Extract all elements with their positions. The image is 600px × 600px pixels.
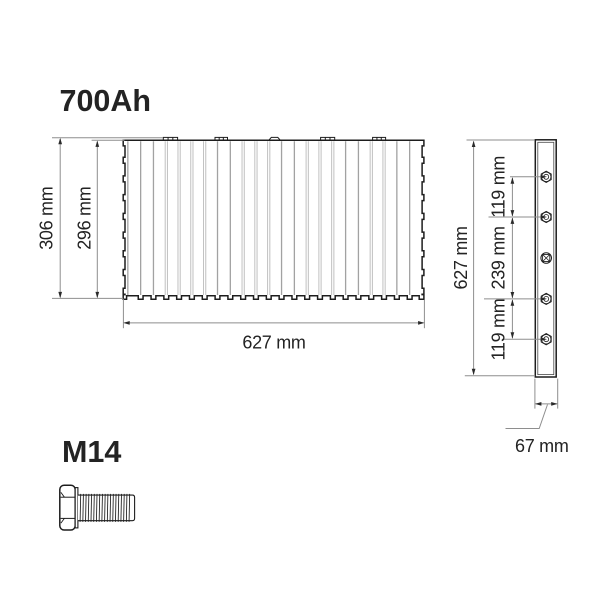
svg-text:296 mm: 296 mm [74,187,94,250]
svg-text:627 mm: 627 mm [451,226,471,289]
svg-text:239 mm: 239 mm [489,226,509,289]
svg-text:67 mm: 67 mm [515,436,569,456]
svg-text:700Ah: 700Ah [60,84,152,118]
svg-text:M14: M14 [62,435,121,469]
svg-text:627 mm: 627 mm [242,333,305,353]
svg-text:119 mm: 119 mm [489,156,509,218]
svg-text:306 mm: 306 mm [37,187,57,250]
svg-text:119 mm: 119 mm [489,299,509,361]
